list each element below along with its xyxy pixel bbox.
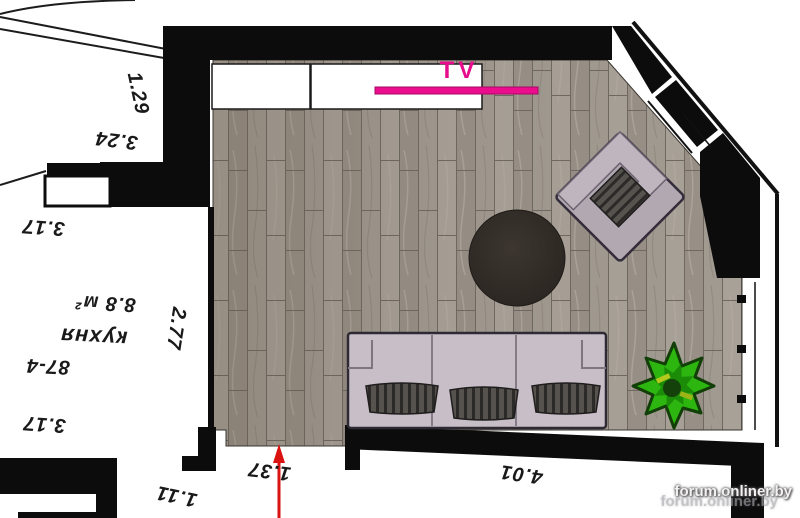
- wall-kitchen-bottom: [0, 458, 117, 518]
- wall-partition: [208, 207, 214, 428]
- dim-3-17-top: 3.17: [21, 214, 65, 240]
- kitchen-name-label: кухня: [59, 322, 128, 351]
- kitchen-window-lintel: [47, 163, 110, 176]
- kitchen-window: [45, 176, 110, 206]
- wall-sliver: [18, 512, 98, 518]
- coffee-table: [469, 210, 565, 306]
- tv-marker-bar: [375, 87, 538, 94]
- kitchen-area-label: 8.8 м²: [74, 289, 136, 315]
- watermark-ghost-text: forum.onliner.by: [660, 495, 778, 508]
- watermark: forum.onliner.by forum.onliner.by: [660, 485, 792, 508]
- wall-bottom: [345, 425, 764, 467]
- floor-plan: TV 1.29 3.24 3.17 8.8 м² кухня 87-4 3.17…: [0, 0, 800, 518]
- wall-door-jamb-left: [182, 427, 216, 471]
- tv-label: TV: [424, 57, 494, 85]
- dim-3-17-bottom: 3.17: [22, 411, 66, 437]
- sofa: [348, 333, 606, 428]
- sofa-pillows: [366, 383, 600, 420]
- plan-drawing: [0, 0, 800, 518]
- kitchen-unit-label: 87-4: [25, 353, 70, 378]
